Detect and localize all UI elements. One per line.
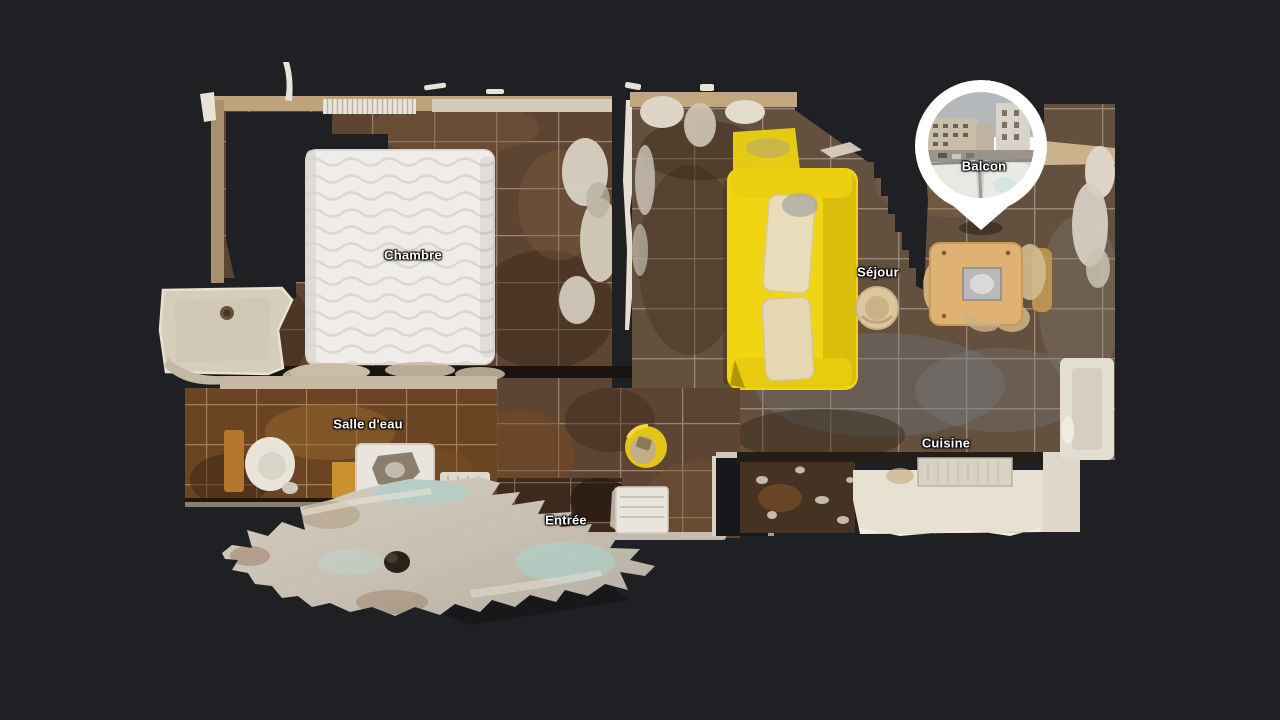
chambre-top-wall-light xyxy=(432,99,628,112)
bed-mattress xyxy=(306,150,494,364)
shower-tray xyxy=(160,288,292,385)
radiator-top xyxy=(323,99,416,114)
round-side-table xyxy=(856,287,898,329)
radiator-hall xyxy=(610,487,668,533)
bath-top-wall xyxy=(220,376,497,389)
floorplan-3d-view[interactable] xyxy=(0,0,1280,720)
yellow-pouf xyxy=(625,426,667,468)
dining-table xyxy=(928,243,1046,332)
chambre-left-wall xyxy=(211,100,224,283)
dollhouse-viewport[interactable]: Chambre Séjour Balcon Salle d'eau Entrée… xyxy=(0,0,1280,720)
splat-hole xyxy=(384,551,410,573)
